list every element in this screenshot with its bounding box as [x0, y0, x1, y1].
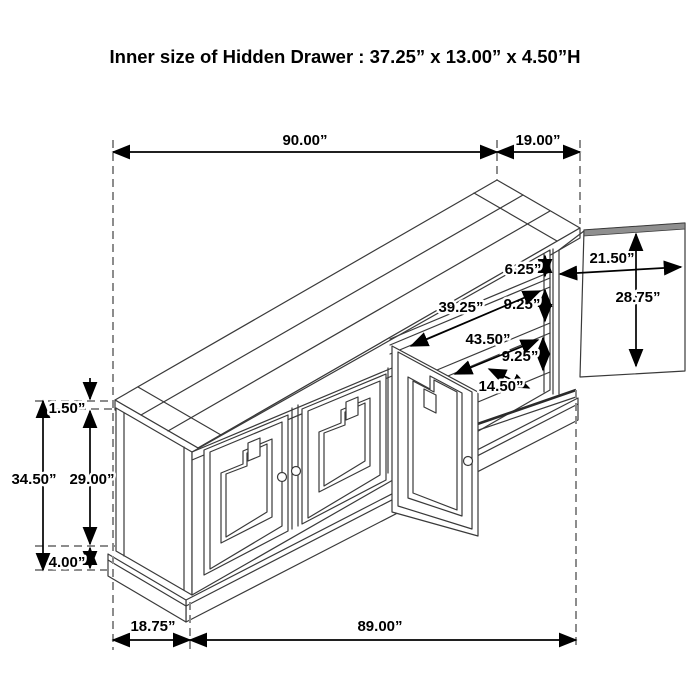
- dim-open-door-width-label: 21.50”: [589, 250, 634, 267]
- door-knob: [464, 457, 473, 466]
- dim-open-door-height-label: 28.75”: [615, 289, 660, 306]
- dim-open-door-extension: 19.00”: [497, 132, 580, 152]
- dim-opening-gap-top-label: 6.25”: [505, 261, 542, 278]
- dim-base-height-label: 4.00”: [49, 554, 86, 571]
- cabinet-right-side-edge: [553, 231, 584, 394]
- dim-side-depth: 18.75”: [113, 618, 190, 640]
- dim-overall-width-label: 90.00”: [282, 132, 327, 149]
- dim-body-width-label: 89.00”: [357, 618, 402, 635]
- dimension-diagram-page: 90.00” 19.00” 34.50” 1.50” 29.00” 4.00” …: [0, 0, 700, 700]
- dim-interior-width-lower-label: 43.50”: [465, 331, 510, 348]
- dim-body-width: 89.00”: [190, 618, 576, 640]
- dim-shelf-gap-lower-label: 9.25”: [502, 348, 539, 365]
- dim-overall-width: 90.00”: [113, 132, 497, 152]
- dim-interior-width-upper-label: 39.25”: [438, 299, 483, 316]
- dim-interior-depth-label: 14.50”: [478, 378, 523, 395]
- dim-open-door-extension-label: 19.00”: [515, 132, 560, 149]
- diagram-canvas: 90.00” 19.00” 34.50” 1.50” 29.00” 4.00” …: [0, 0, 700, 700]
- dim-side-depth-label: 18.75”: [130, 618, 175, 635]
- dim-base-height: 4.00”: [49, 548, 90, 571]
- door-knob: [278, 473, 287, 482]
- dim-overall-height: 34.50”: [11, 401, 56, 570]
- door-knob: [292, 467, 301, 476]
- dim-door-height-label: 29.00”: [69, 471, 114, 488]
- dim-overall-height-label: 34.50”: [11, 471, 56, 488]
- page-title: Inner size of Hidden Drawer : 37.25” x 1…: [110, 46, 581, 67]
- dim-top-thickness: 1.50”: [49, 378, 90, 417]
- dim-door-height: 29.00”: [69, 411, 114, 544]
- dim-top-thickness-label: 1.50”: [49, 400, 86, 417]
